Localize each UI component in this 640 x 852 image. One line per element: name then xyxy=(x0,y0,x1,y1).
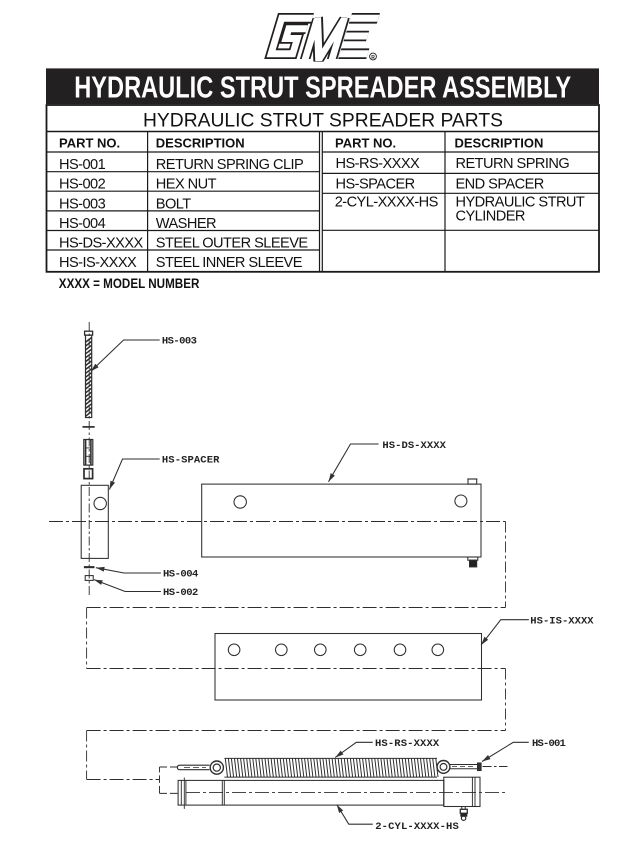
svg-text:HS-004: HS-004 xyxy=(163,569,198,581)
svg-text:HS-SPACER: HS-SPACER xyxy=(336,177,415,193)
svg-text:HYDRAULIC STRUT SPREADER PARTS: HYDRAULIC STRUT SPREADER PARTS xyxy=(143,109,503,131)
svg-text:HS-001: HS-001 xyxy=(59,157,106,173)
svg-text:HS-003: HS-003 xyxy=(59,196,106,212)
svg-text:2-CYL-XXXX-HS: 2-CYL-XXXX-HS xyxy=(335,195,439,211)
svg-text:HS-RS-XXXX: HS-RS-XXXX xyxy=(336,156,421,172)
svg-text:END SPACER: END SPACER xyxy=(456,177,544,193)
svg-text:HS-001: HS-001 xyxy=(532,738,566,750)
svg-text:XXXX = MODEL NUMBER: XXXX = MODEL NUMBER xyxy=(59,276,200,291)
svg-text:CYLINDER: CYLINDER xyxy=(456,208,525,224)
svg-text:HS-IS-XXXX: HS-IS-XXXX xyxy=(59,255,137,271)
svg-text:RETURN SPRING CLIP: RETURN SPRING CLIP xyxy=(156,157,303,173)
svg-text:DESCRIPTION: DESCRIPTION xyxy=(455,135,544,150)
svg-text:R: R xyxy=(371,55,375,61)
svg-text:DESCRIPTION: DESCRIPTION xyxy=(156,135,245,150)
svg-text:BOLT: BOLT xyxy=(156,196,191,212)
svg-text:HS-002: HS-002 xyxy=(59,177,106,193)
svg-text:HYDRAULIC STRUT SPREADER ASSEM: HYDRAULIC STRUT SPREADER ASSEMBLY xyxy=(74,70,571,104)
svg-text:WASHER: WASHER xyxy=(156,216,216,232)
svg-text:STEEL INNER SLEEVE: STEEL INNER SLEEVE xyxy=(156,255,303,271)
svg-text:HS-003: HS-003 xyxy=(162,336,197,348)
svg-text:STEEL OUTER SLEEVE: STEEL OUTER SLEEVE xyxy=(156,236,309,252)
svg-text:HS-RS-XXXX: HS-RS-XXXX xyxy=(375,738,440,750)
svg-text:HS-IS-XXXX: HS-IS-XXXX xyxy=(530,616,594,628)
svg-text:PART NO.: PART NO. xyxy=(59,135,120,150)
svg-text:PART NO.: PART NO. xyxy=(335,135,396,150)
svg-text:HS-DS-XXXX: HS-DS-XXXX xyxy=(59,236,144,252)
svg-text:HS-SPACER: HS-SPACER xyxy=(162,454,220,466)
svg-text:RETURN SPRING: RETURN SPRING xyxy=(456,156,570,172)
svg-text:HS-DS-XXXX: HS-DS-XXXX xyxy=(382,440,446,452)
svg-text:HS-002: HS-002 xyxy=(163,587,198,599)
svg-text:HEX NUT: HEX NUT xyxy=(156,177,217,193)
svg-text:HS-004: HS-004 xyxy=(59,216,106,232)
svg-text:2-CYL-XXXX-HS: 2-CYL-XXXX-HS xyxy=(375,821,459,833)
